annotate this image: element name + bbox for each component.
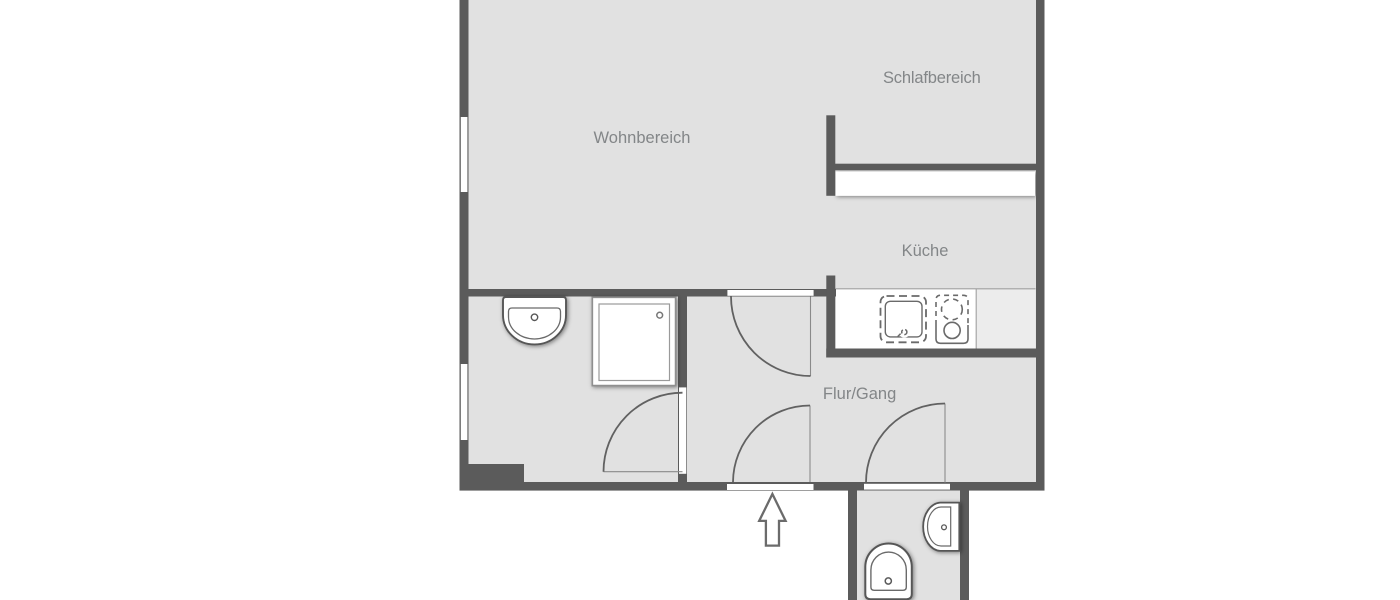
svg-text:Küche: Küche: [902, 242, 949, 260]
svg-text:Wohnbereich: Wohnbereich: [594, 129, 691, 147]
svg-text:Schlafbereich: Schlafbereich: [883, 69, 981, 87]
svg-text:Flur/Gang: Flur/Gang: [823, 385, 896, 403]
